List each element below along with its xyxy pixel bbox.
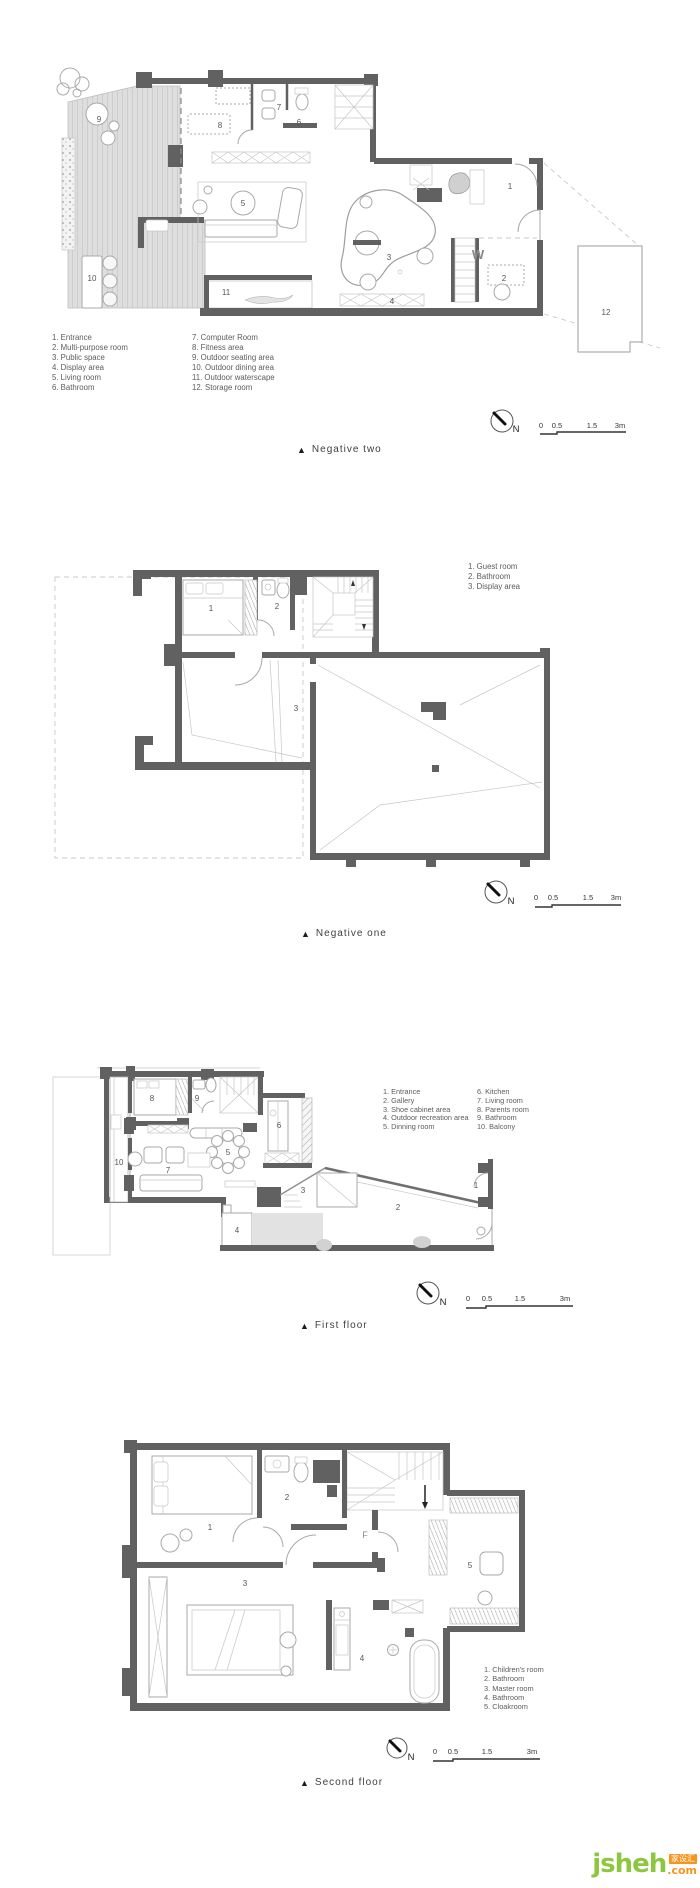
legend-item: 9. Outdoor seating area — [192, 353, 275, 363]
watermark-name: jsheh — [592, 1851, 666, 1877]
tree-icon — [57, 68, 89, 97]
caption-negative-two: ▲ Negative two — [297, 444, 382, 455]
caption-text: Second floor — [315, 1777, 383, 1788]
legend-second-floor: 1. Children's room2. Bathroom3. Master r… — [484, 1665, 544, 1711]
legend-item: 7. Computer Room — [192, 333, 275, 343]
second-floor-plan: 1 2 3 4 5 F — [122, 1440, 525, 1711]
room-label: 3 — [387, 253, 392, 262]
room-label: 8 — [150, 1094, 155, 1103]
room-label: 2 — [396, 1203, 401, 1212]
svg-text:1.5: 1.5 — [482, 1747, 492, 1756]
legend-negative-two-col1: 1. Entrance2. Multi-purpose room3. Publi… — [52, 333, 128, 394]
svg-text:0: 0 — [534, 893, 538, 902]
room-label: 3 — [243, 1579, 248, 1588]
page: 9 10 11 8 7 6 5 3 1 2 4 12 W — [0, 0, 700, 1888]
watermark-tld: .com — [667, 1865, 697, 1876]
svg-text:0: 0 — [433, 1747, 437, 1756]
property-outline — [53, 1077, 110, 1255]
room-label: 2 — [275, 602, 280, 611]
room-label: 5 — [468, 1561, 473, 1570]
triangle-marker-icon: ▲ — [297, 445, 306, 455]
svg-text:0.5: 0.5 — [448, 1747, 458, 1756]
triangle-marker-icon: ▲ — [301, 929, 310, 939]
legend-item: 2. Bathroom — [484, 1674, 544, 1683]
legend-negative-one: 1. Guest room2. Bathroom3. Display area — [468, 562, 520, 592]
legend-item: 6. Bathroom — [52, 383, 128, 393]
compass-second-floor: N — [387, 1738, 415, 1763]
legend-item: 1. Entrance — [52, 333, 128, 343]
legend-item: 11. Outdoor waterscape — [192, 373, 275, 383]
room-label: 8 — [218, 121, 223, 130]
room-label: 2 — [285, 1493, 290, 1502]
room-label: 3 — [294, 704, 299, 713]
compass-negative-two: N — [491, 410, 520, 435]
room-label: 7 — [277, 103, 282, 112]
legend-item: 5. Dinning room — [383, 1123, 469, 1132]
legend-first-floor-col2: 6. Kitchen7. Living room8. Parents room9… — [477, 1088, 529, 1132]
legend-item: 2. Multi-purpose room — [52, 343, 128, 353]
legend-item: 4. Display area — [52, 363, 128, 373]
room-label: 9 — [97, 115, 102, 124]
room-label: 11 — [222, 288, 231, 297]
room-label: 9 — [195, 1094, 200, 1103]
svg-text:1.5: 1.5 — [587, 421, 597, 430]
legend-item: 1. Guest room — [468, 562, 520, 572]
compass-negative-one: N — [485, 881, 515, 907]
wall-annotation: W — [472, 247, 485, 262]
north-label: N — [513, 424, 520, 435]
legend-item: 10. Outdoor dining area — [192, 363, 275, 373]
legend-item: 3. Display area — [468, 582, 520, 592]
legend-first-floor-col1: 1. Entrance2. Gallery3. Shoe cabinet are… — [383, 1088, 469, 1132]
svg-text:0: 0 — [539, 421, 543, 430]
room-label: 3 — [301, 1186, 306, 1195]
north-label: N — [508, 896, 515, 907]
room-label: 1 — [474, 1181, 479, 1190]
legend-item: 12. Storage room — [192, 383, 275, 393]
caption-second-floor: ▲ Second floor — [300, 1777, 383, 1788]
caption-first-floor: ▲ First floor — [300, 1320, 368, 1331]
legend-item: 5. Living room — [52, 373, 128, 383]
room-label: 7 — [166, 1166, 171, 1175]
watermark-badge: 家设汇 — [669, 1854, 697, 1864]
room-label: 10 — [115, 1158, 124, 1167]
scale-bar-second-floor: 0 0.5 1.5 3m — [433, 1747, 540, 1761]
floor-plans-canvas: 9 10 11 8 7 6 5 3 1 2 4 12 W — [0, 0, 700, 1888]
triangle-marker-icon: ▲ — [300, 1778, 309, 1788]
room-label: 1 — [209, 604, 214, 613]
scale-bar-negative-two: 0 0.5 1.5 3m — [539, 421, 626, 434]
negative-one-plan: 1 2 3 — [55, 570, 550, 867]
room-label: 4 — [235, 1226, 240, 1235]
room-label: 1 — [508, 182, 513, 191]
room-label: 2 — [502, 274, 507, 283]
planting-strip — [62, 138, 75, 250]
north-label: N — [408, 1752, 415, 1763]
triangle-marker-icon: ▲ — [300, 1321, 309, 1331]
negative-two-plan: 9 10 11 8 7 6 5 3 1 2 4 12 W — [57, 68, 660, 352]
svg-text:3m: 3m — [615, 421, 625, 430]
room-label: 5 — [226, 1148, 231, 1157]
svg-text:0: 0 — [466, 1294, 470, 1303]
room-label: 1 — [208, 1523, 213, 1532]
scale-bar-first-floor: 0 0.5 1.5 3m — [466, 1294, 573, 1308]
storage-room-outline — [578, 246, 642, 352]
legend-item: 2. Bathroom — [468, 572, 520, 582]
svg-text:0.5: 0.5 — [482, 1294, 492, 1303]
svg-text:1.5: 1.5 — [515, 1294, 525, 1303]
legend-negative-two-col2: 7. Computer Room8. Fitness area9. Outdoo… — [192, 333, 275, 394]
site-watermark-logo: jsheh 家设汇 .com — [592, 1851, 697, 1877]
compass-first-floor: N — [417, 1282, 447, 1308]
room-label: 6 — [297, 118, 302, 127]
scale-bar-negative-one: 0 0.5 1.5 3m — [534, 893, 621, 907]
legend-item: 4. Bathroom — [484, 1693, 544, 1702]
svg-text:3m: 3m — [611, 893, 621, 902]
svg-text:0.5: 0.5 — [548, 893, 558, 902]
room-label: 12 — [602, 308, 611, 317]
legend-item: 8. Fitness area — [192, 343, 275, 353]
floor-annotation: F — [362, 1530, 368, 1540]
svg-text:3m: 3m — [527, 1747, 537, 1756]
room-label: 5 — [241, 199, 246, 208]
legend-item: 5. Cloakroom — [484, 1702, 544, 1711]
svg-text:1.5: 1.5 — [583, 893, 593, 902]
caption-text: First floor — [315, 1320, 368, 1331]
room-label: 6 — [277, 1121, 282, 1130]
svg-text:0.5: 0.5 — [552, 421, 562, 430]
legend-item: 10. Balcony — [477, 1123, 529, 1132]
room-label: 4 — [390, 297, 395, 306]
room-label: 10 — [88, 274, 97, 283]
legend-item: 3. Public space — [52, 353, 128, 363]
north-label: N — [440, 1297, 447, 1308]
caption-text: Negative one — [316, 928, 387, 939]
legend-item: 1. Children's room — [484, 1665, 544, 1674]
caption-negative-one: ▲ Negative one — [301, 928, 387, 939]
svg-text:3m: 3m — [560, 1294, 570, 1303]
caption-text: Negative two — [312, 444, 382, 455]
legend-item: 3. Master room — [484, 1684, 544, 1693]
room-label: 4 — [360, 1654, 365, 1663]
